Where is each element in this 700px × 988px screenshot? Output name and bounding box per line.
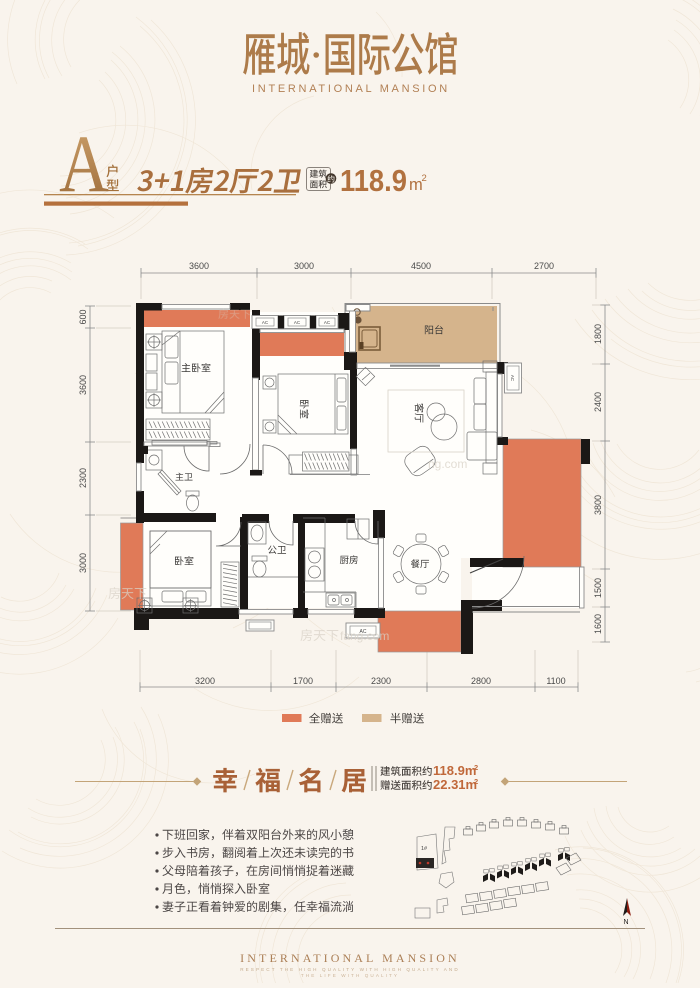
svg-text:4500: 4500 (411, 261, 431, 271)
svg-text:3600: 3600 (78, 375, 88, 395)
svg-text:1100: 1100 (546, 676, 565, 686)
svg-text:2: 2 (474, 777, 478, 786)
svg-text:INTERNATIONAL MANSION: INTERNATIONAL MANSION (240, 951, 460, 965)
svg-text:2: 2 (422, 173, 427, 184)
svg-text:1800: 1800 (593, 324, 603, 344)
svg-text:2700: 2700 (534, 261, 554, 271)
svg-text:1600: 1600 (593, 614, 603, 634)
svg-text:3000: 3000 (78, 553, 88, 573)
svg-text:1500: 1500 (593, 578, 603, 598)
svg-text:2300: 2300 (78, 468, 88, 488)
svg-text:THE LIFE WITH QUALITY: THE LIFE WITH QUALITY (301, 973, 399, 978)
svg-text:3800: 3800 (593, 495, 603, 515)
svg-text:3200: 3200 (195, 676, 215, 686)
svg-text:AC: AC (510, 375, 515, 382)
svg-text:ng.com: ng.com (428, 457, 467, 471)
svg-text:1700: 1700 (293, 676, 313, 686)
svg-text:RESPECT THE HIGH QUALITY WITH: RESPECT THE HIGH QUALITY WITH HIGH QUALI… (240, 967, 460, 972)
svg-text:1#: 1# (421, 846, 428, 852)
svg-text:2300: 2300 (371, 676, 391, 686)
svg-text:2800: 2800 (471, 676, 491, 686)
svg-text:AC: AC (324, 320, 331, 325)
svg-text:2400: 2400 (593, 392, 603, 412)
svg-text:3600: 3600 (189, 261, 209, 271)
svg-text:2: 2 (474, 763, 478, 772)
svg-text:N: N (624, 919, 629, 926)
svg-text:INTERNATIONAL MANSION: INTERNATIONAL MANSION (252, 83, 450, 95)
svg-text:600: 600 (78, 309, 88, 324)
svg-text:22.31m: 22.31m (433, 777, 477, 792)
svg-text:118.9: 118.9 (340, 164, 407, 198)
svg-text:118.9m: 118.9m (433, 763, 476, 778)
svg-text:AC: AC (294, 320, 301, 325)
svg-text:3000: 3000 (294, 261, 314, 271)
svg-text:AC: AC (262, 320, 269, 325)
svg-text:A: A (59, 120, 109, 210)
svg-text:fang.com: fang.com (340, 629, 389, 643)
